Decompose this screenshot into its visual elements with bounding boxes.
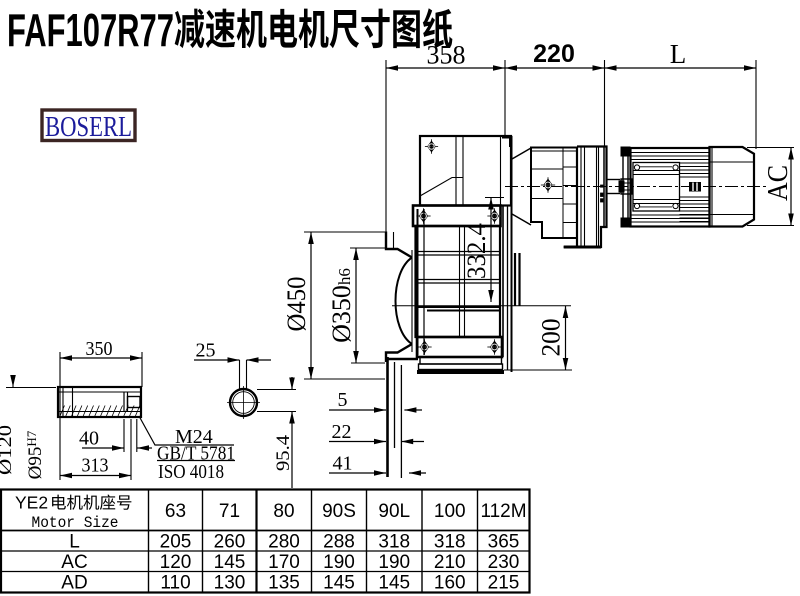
svg-text:Ø120: Ø120 [0,425,16,475]
svg-text:130: 130 [214,573,246,594]
svg-text:145: 145 [378,573,410,594]
svg-text:358: 358 [427,41,466,70]
svg-text:25: 25 [196,340,216,362]
svg-text:160: 160 [434,573,466,594]
svg-text:288: 288 [323,532,355,553]
svg-text:318: 318 [434,532,466,553]
svg-text:205: 205 [160,532,192,553]
svg-text:230: 230 [488,552,520,573]
svg-text:5: 5 [338,389,348,411]
svg-text:135: 135 [268,573,300,594]
svg-text:215: 215 [488,573,520,594]
svg-text:145: 145 [323,573,355,594]
svg-text:112M: 112M [480,501,526,522]
svg-text:313: 313 [82,455,109,477]
svg-text:190: 190 [378,552,410,573]
svg-text:90S: 90S [322,501,356,522]
svg-text:120: 120 [160,552,192,573]
svg-text:210: 210 [434,552,466,573]
svg-text:318: 318 [378,532,410,553]
svg-text:71: 71 [219,501,240,522]
svg-text:90L: 90L [378,501,410,522]
svg-text:AD: AD [61,573,87,594]
svg-text:AC: AC [762,165,794,201]
svg-text:95.4: 95.4 [273,434,294,471]
svg-text:332.4: 332.4 [462,223,491,279]
svg-text:40: 40 [79,428,99,450]
svg-text:200: 200 [537,319,566,357]
svg-text:80: 80 [273,501,294,522]
svg-text:260: 260 [214,532,246,553]
svg-text:100: 100 [434,501,466,522]
svg-text:110: 110 [160,573,190,594]
svg-text:L: L [670,39,687,69]
svg-text:Ø450: Ø450 [282,277,311,332]
svg-text:FAF107R77: FAF107R77 [7,4,174,56]
svg-text:350: 350 [86,338,113,360]
svg-text:63: 63 [165,501,186,522]
svg-text:ISO 4018: ISO 4018 [158,461,224,483]
svg-text:41: 41 [333,453,353,475]
svg-text:280: 280 [268,532,300,553]
svg-text:AC: AC [61,552,87,573]
svg-text:Motor Size: Motor Size [32,514,119,532]
svg-text:BOSERL: BOSERL [45,111,132,143]
svg-text:L: L [69,532,80,553]
svg-text:YE2: YE2 [15,493,48,513]
svg-text:22: 22 [332,421,352,443]
svg-text:190: 190 [323,552,355,573]
svg-text:145: 145 [214,552,246,573]
svg-text:365: 365 [488,532,520,553]
svg-text:170: 170 [268,552,300,573]
svg-text:220: 220 [533,40,575,68]
